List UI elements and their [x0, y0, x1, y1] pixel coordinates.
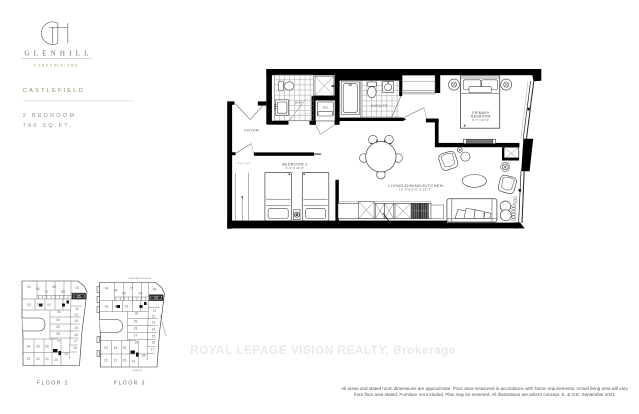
svg-text:03: 03 [27, 303, 31, 307]
svg-text:27: 27 [57, 339, 61, 343]
svg-text:22: 22 [104, 359, 108, 363]
svg-text:04: 04 [27, 285, 31, 289]
svg-text:08: 08 [139, 292, 143, 296]
svg-text:17: 17 [151, 348, 155, 352]
svg-text:02: 02 [37, 303, 41, 307]
svg-text:22: 22 [36, 357, 40, 361]
svg-text:18: 18 [73, 346, 77, 350]
svg-text:24: 24 [27, 345, 31, 349]
svg-text:ENTRY CLOSET: ENTRY CLOSET [237, 163, 250, 165]
svg-text:04: 04 [105, 287, 109, 291]
svg-text:20: 20 [123, 359, 127, 363]
svg-text:9′-7″ X 17′-6″: 9′-7″ X 17′-6″ [472, 118, 490, 122]
svg-text:29: 29 [56, 325, 60, 329]
svg-text:13: 13 [152, 321, 156, 325]
svg-text:24: 24 [114, 346, 118, 350]
svg-text:12: 12 [152, 315, 156, 319]
svg-text:15: 15 [74, 326, 78, 330]
svg-text:19: 19 [64, 352, 68, 356]
svg-text:14: 14 [74, 319, 78, 323]
svg-text:02: 02 [115, 305, 119, 309]
svg-text:2 BEDROOM: 2 BEDROOM [23, 113, 77, 119]
svg-text:BATH: BATH [295, 102, 302, 105]
svg-text:FLOOR 3: FLOOR 3 [114, 381, 146, 387]
svg-text:01: 01 [47, 303, 51, 307]
svg-text:CONDOMINIUMS: CONDOMINIUMS [34, 64, 79, 68]
svg-text:GLENHILL: GLENHILL [24, 50, 92, 58]
svg-text:09: 09 [61, 290, 65, 294]
svg-text:BEDROOM: BEDROOM [471, 115, 491, 119]
svg-text:CASTLEFIELD: CASTLEFIELD [23, 88, 85, 94]
svg-text:30: 30 [56, 318, 60, 322]
svg-text:16: 16 [152, 341, 156, 345]
svg-text:01: 01 [125, 305, 129, 309]
svg-text:16: 16 [74, 333, 78, 337]
svg-text:from floor area stated. Furnit: from floor area stated. Furniture not in… [354, 392, 615, 397]
svg-text:30: 30 [135, 312, 139, 316]
svg-text:03: 03 [105, 305, 109, 309]
svg-text:W/D: W/D [323, 107, 328, 109]
svg-text:29: 29 [134, 320, 138, 324]
svg-text:ROYAL LEPAGE VISION REALTY, Br: ROYAL LEPAGE VISION REALTY, Brokerage [190, 343, 456, 357]
svg-text:All areas and stated room dime: All areas and stated room dimensions are… [341, 386, 628, 391]
svg-text:12′-0″/10′-5″ X 23′-7″: 12′-0″/10′-5″ X 23′-7″ [399, 188, 432, 192]
svg-text:08: 08 [52, 285, 56, 289]
svg-text:11: 11 [153, 309, 157, 313]
svg-text:20: 20 [54, 358, 58, 362]
svg-text:FOYER: FOYER [244, 128, 259, 132]
svg-text:26: 26 [45, 345, 49, 349]
svg-text:9′-0″ X 11′-6″: 9′-0″ X 11′-6″ [286, 166, 305, 170]
svg-text:21: 21 [114, 359, 118, 363]
svg-text:06: 06 [36, 287, 40, 291]
svg-text:23: 23 [27, 357, 31, 361]
svg-text:23: 23 [104, 346, 108, 350]
svg-text:10: 10 [75, 286, 79, 290]
svg-text:14: 14 [152, 328, 156, 332]
svg-text:05: 05 [77, 295, 81, 299]
svg-text:796 SQ.FT.: 796 SQ.FT. [23, 123, 73, 129]
svg-text:28: 28 [134, 327, 138, 331]
svg-text:12: 12 [75, 307, 79, 311]
svg-text:31: 31 [57, 310, 61, 314]
svg-text:28: 28 [56, 332, 60, 336]
svg-text:05: 05 [154, 296, 158, 300]
svg-text:07: 07 [45, 290, 49, 294]
svg-text:GLENGARRY AVENUE: GLENGARRY AVENUE [128, 277, 151, 280]
svg-text:07: 07 [130, 287, 134, 291]
svg-text:FLOOR 2: FLOOR 2 [37, 381, 69, 387]
svg-text:19: 19 [132, 360, 136, 364]
svg-text:21: 21 [45, 357, 49, 361]
svg-text:27: 27 [134, 334, 138, 338]
svg-text:13: 13 [74, 313, 78, 317]
svg-text:25: 25 [36, 345, 40, 349]
svg-text:09: 09 [153, 288, 157, 292]
svg-text:ENSUITE: ENSUITE [371, 104, 388, 108]
svg-text:26: 26 [135, 341, 139, 345]
svg-text:AVENUE: AVENUE [133, 369, 142, 372]
svg-text:17: 17 [74, 339, 78, 343]
svg-text:18: 18 [142, 354, 146, 358]
svg-text:15: 15 [152, 335, 156, 339]
svg-text:06: 06 [122, 292, 126, 296]
svg-text:05: 05 [114, 289, 118, 293]
svg-text:25: 25 [123, 346, 127, 350]
